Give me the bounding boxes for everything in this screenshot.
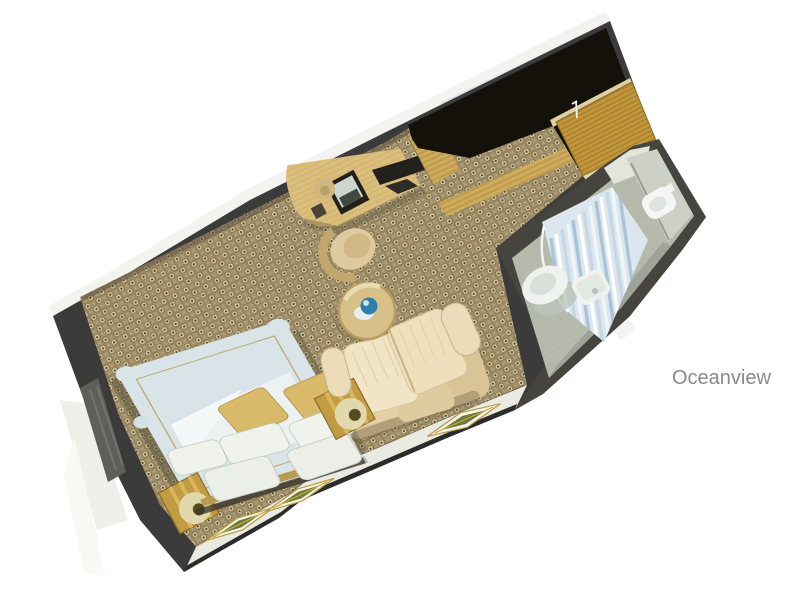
svg-text:Oceanview: Oceanview <box>672 367 771 389</box>
